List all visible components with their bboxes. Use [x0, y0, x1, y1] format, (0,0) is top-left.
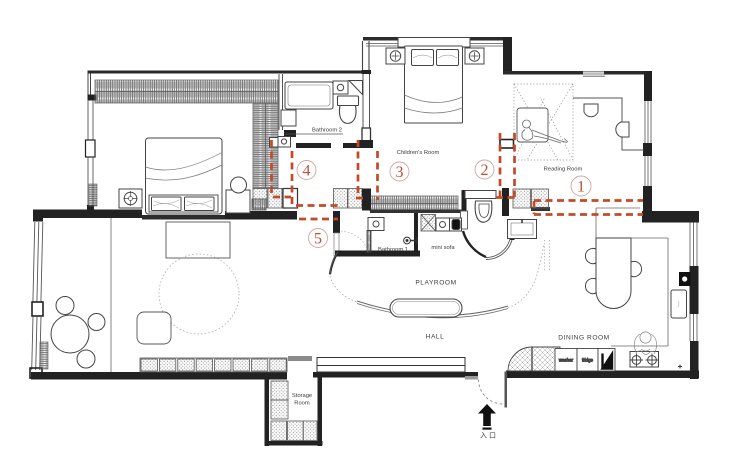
svg-text:3: 3 — [396, 164, 404, 181]
svg-text:5: 5 — [314, 231, 322, 248]
svg-text:DINING ROOM: DINING ROOM — [558, 335, 609, 342]
svg-text:HALL: HALL — [426, 334, 445, 341]
svg-text:Bathroom 1: Bathroom 1 — [378, 247, 408, 253]
svg-text:1: 1 — [577, 179, 585, 196]
svg-text:Children's Room: Children's Room — [397, 150, 440, 156]
svg-text:Room: Room — [294, 401, 310, 407]
svg-text:Storage: Storage — [292, 393, 312, 399]
svg-text:washer: washer — [559, 358, 574, 363]
svg-text:mini sofa: mini sofa — [431, 245, 455, 251]
svg-text:4: 4 — [303, 163, 311, 180]
svg-text:Bathroom 2: Bathroom 2 — [312, 128, 342, 134]
svg-text:2: 2 — [481, 162, 489, 179]
svg-text:入 口: 入 口 — [480, 432, 496, 440]
svg-text:fridge: fridge — [582, 358, 594, 363]
svg-text:Reading Room: Reading Room — [544, 167, 583, 173]
svg-text:PLAYROOM: PLAYROOM — [415, 280, 456, 287]
